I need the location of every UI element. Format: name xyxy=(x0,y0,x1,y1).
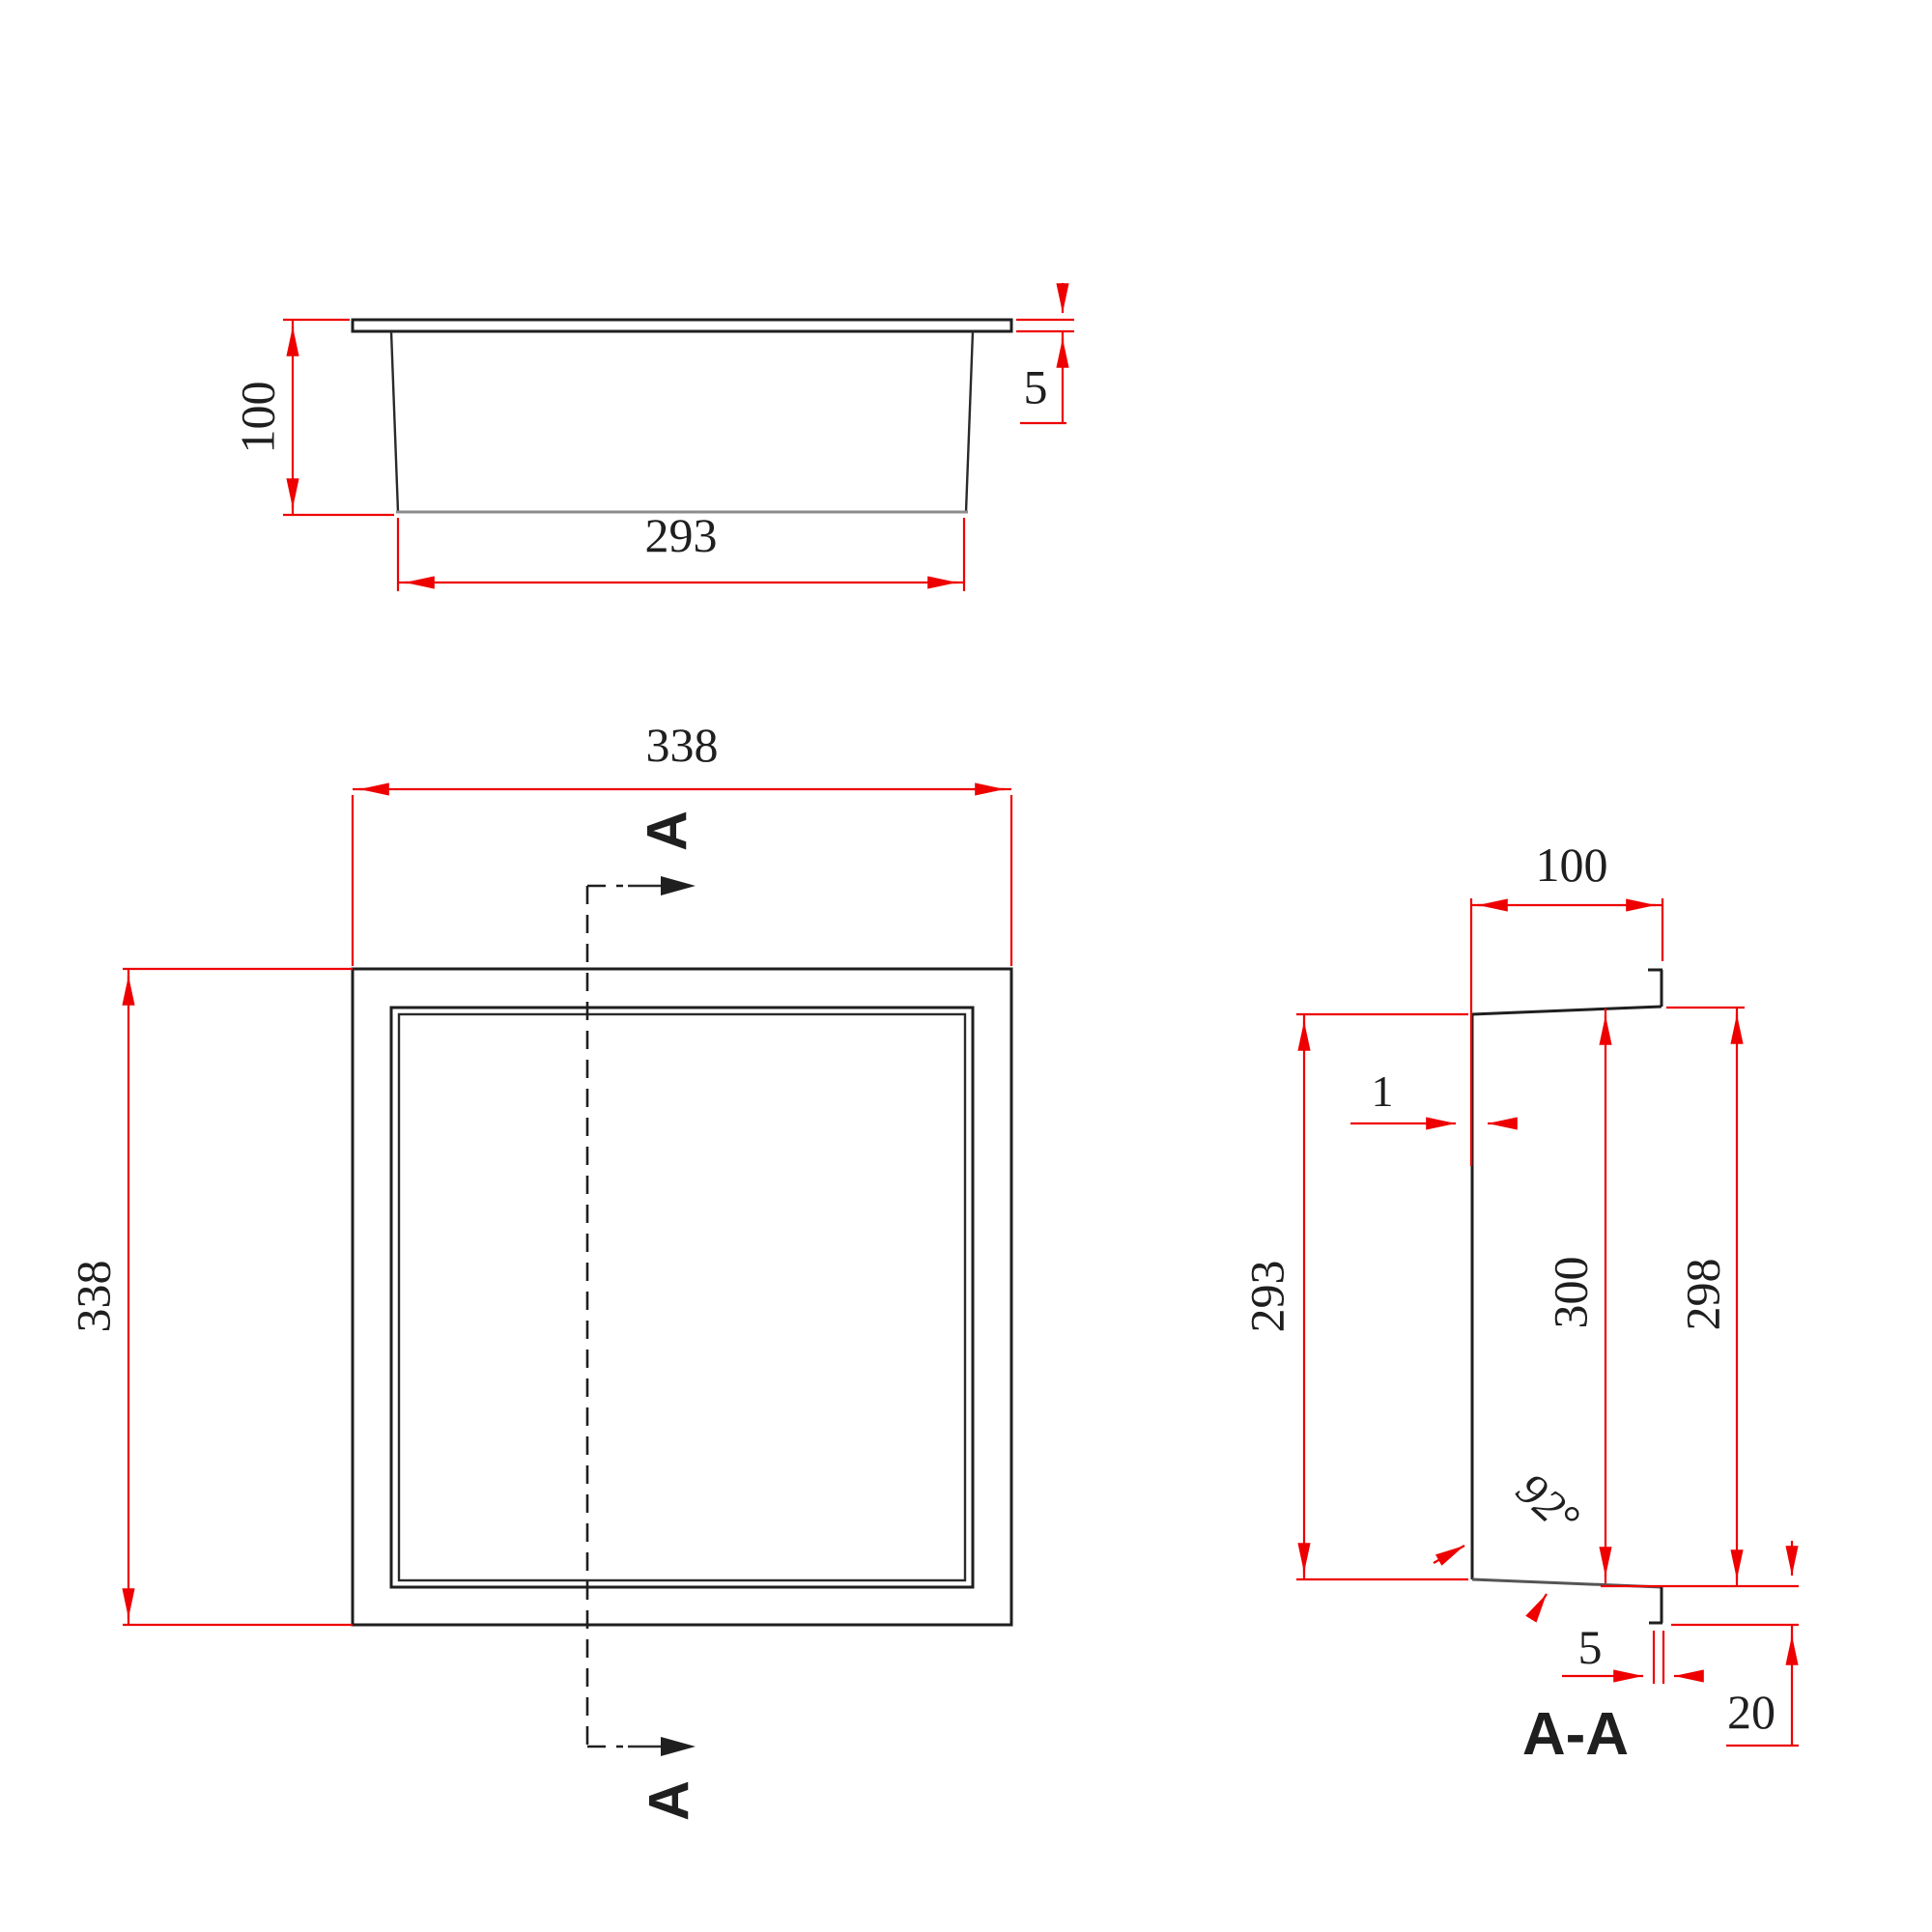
top-view-flange xyxy=(353,320,1011,331)
drawing-page: 100 5 293 xyxy=(0,0,1932,1932)
section-top-line xyxy=(1471,1007,1662,1014)
plan-dim-height: 338 xyxy=(67,969,354,1625)
section-letter-bottom: A xyxy=(638,1780,700,1821)
section-lip-gap-label: 5 xyxy=(1578,1620,1603,1674)
plan-outer-square xyxy=(353,969,1011,1625)
plan-view: 338 338 A A xyxy=(67,718,1012,1821)
section-dim-depth: 100 xyxy=(1471,838,1662,1166)
top-view-height-label: 100 xyxy=(231,382,285,454)
section-back-height-label: 293 xyxy=(1240,1261,1294,1333)
section-letter-top: A xyxy=(636,810,698,851)
plan-inner-square-inner-line xyxy=(399,1014,965,1580)
top-view-left-wall xyxy=(391,331,398,512)
section-angle-label: 92° xyxy=(1506,1463,1588,1545)
section-dim-wall-thickness: 1 xyxy=(1350,1066,1515,1123)
section-dim-front-height: 298 xyxy=(1601,1008,1799,1586)
section-depth-label: 100 xyxy=(1536,838,1608,892)
plan-width-label: 338 xyxy=(646,718,719,772)
top-view-right-wall xyxy=(966,331,973,512)
section-inner-height-label: 300 xyxy=(1544,1257,1598,1329)
top-view-dim-bottom-width: 293 xyxy=(398,508,964,591)
top-view-flange-thickness-label: 5 xyxy=(1024,360,1048,414)
section-title: A-A xyxy=(1522,1701,1629,1768)
section-front-height-label: 298 xyxy=(1676,1259,1730,1331)
section-dim-lip-gap: 5 xyxy=(1562,1620,1703,1684)
top-view-bottom-width-label: 293 xyxy=(645,508,718,562)
plan-inner-square-outer-line xyxy=(391,1008,973,1587)
section-dim-back-height: 293 xyxy=(1240,1014,1469,1579)
top-view-dim-flange-thickness: 5 xyxy=(1016,283,1074,423)
section-view: 100 1 293 300 xyxy=(1240,838,1800,1768)
section-dim-lip-length: 20 xyxy=(1671,1541,1799,1746)
plan-section-line: A A xyxy=(587,810,700,1821)
technical-drawing: 100 5 293 xyxy=(0,0,1932,1932)
top-view-dim-height: 100 xyxy=(231,320,395,515)
plan-height-label: 338 xyxy=(67,1261,121,1333)
section-dim-angle: 92° xyxy=(1434,1463,1589,1619)
section-lip-length-label: 20 xyxy=(1727,1685,1776,1739)
section-wall-thickness-label: 1 xyxy=(1372,1066,1394,1116)
top-view: 100 5 293 xyxy=(231,283,1075,591)
